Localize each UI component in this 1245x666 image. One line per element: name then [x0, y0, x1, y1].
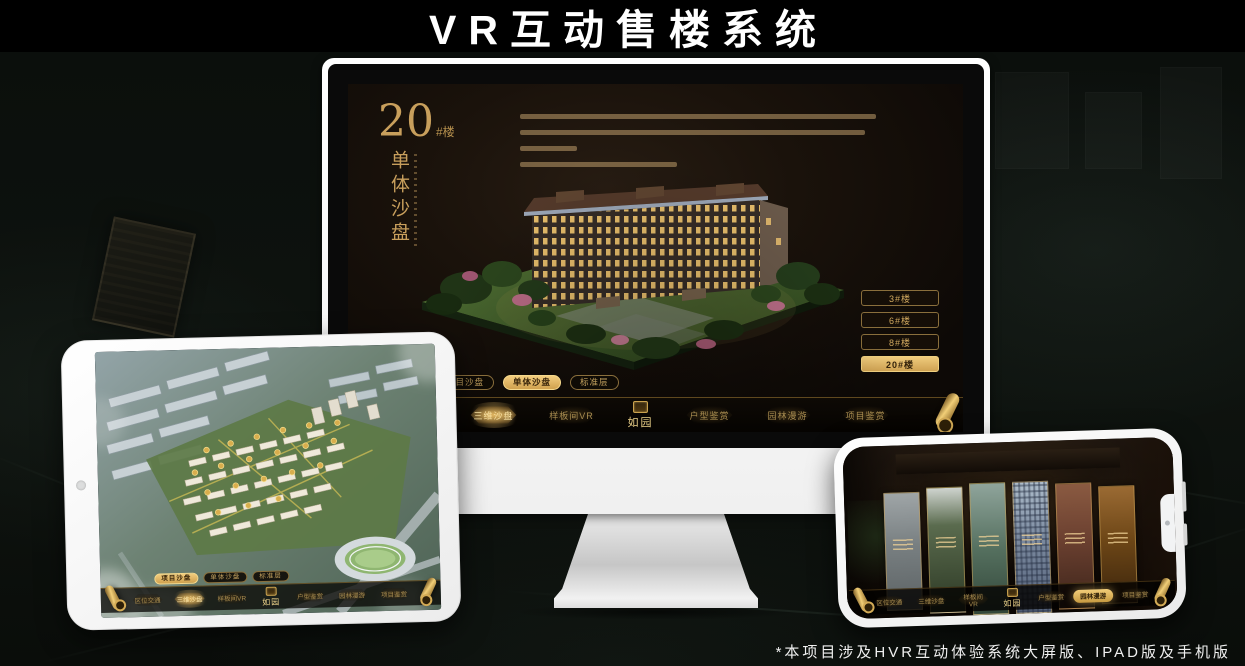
footnote: *本项目涉及HVR互动体验系统大屏版、IPAD版及手机版 — [776, 641, 1231, 662]
scroll-ornament-icon[interactable] — [934, 391, 962, 430]
background-building-block — [1085, 92, 1142, 169]
nav-item-garden-tour[interactable]: 园林漫游 — [1073, 588, 1113, 602]
phone-side-button — [1183, 523, 1188, 545]
nav-item-floorplan[interactable]: 户型鉴赏 — [674, 398, 746, 432]
tab-standard-floor[interactable]: 标准层 — [252, 570, 289, 582]
nav-item-floorplan[interactable]: 户型鉴赏 — [290, 583, 331, 608]
seal-icon — [265, 586, 276, 595]
background-building-block — [1160, 67, 1222, 179]
brand-logo-text: 如园 — [262, 596, 280, 607]
nav-item-project[interactable]: 项目鉴赏 — [374, 581, 415, 606]
floor-button-8[interactable]: 8#楼 — [861, 334, 939, 350]
nav-item-location[interactable]: 区位交通 — [127, 587, 168, 612]
nav-item-model-room-vr[interactable]: 样板间VR — [536, 398, 608, 432]
nav-item-project[interactable]: 项目鉴赏 — [830, 398, 902, 432]
phone-notch — [1160, 494, 1177, 552]
background-plaque — [92, 216, 196, 337]
scroll-ornament-icon[interactable] — [419, 576, 438, 603]
floor-button-6[interactable]: 6#楼 — [861, 312, 939, 328]
tablet-device: 项目沙盘 单体沙盘 标准层 区位交通 三维沙盘 样板间VR 如园 户型鉴赏 园林… — [61, 331, 462, 631]
floor-button-20[interactable]: 20#楼 — [861, 356, 939, 372]
nav-item-3d-sandbox[interactable]: 三维沙盘 — [911, 588, 952, 613]
brand-logo-text: 如园 — [1003, 597, 1021, 609]
nav-item-garden-tour[interactable]: 园林漫游 — [752, 398, 824, 432]
phone-screen: 区位交通 三维沙盘 样板间VR 如园 户型鉴赏 园林漫游 项目鉴赏 — [842, 437, 1177, 619]
title-bar: VR互动售楼系统 — [0, 0, 1245, 52]
nav-item-garden-tour[interactable]: 园林漫游 — [332, 582, 373, 607]
text-line — [520, 114, 876, 119]
tab-standard-floor[interactable]: 标准层 — [570, 375, 619, 390]
brand-logo-text: 如园 — [628, 414, 654, 430]
tab-single-sandbox[interactable]: 单体沙盘 — [203, 571, 247, 583]
background-building-block — [995, 72, 1069, 169]
sandbox-tabs: 项目沙盘 单体沙盘 标准层 — [436, 375, 619, 390]
building-number: 20 — [378, 96, 434, 147]
scroll-ornament-icon[interactable] — [1153, 577, 1172, 604]
tab-project-sandbox[interactable]: 项目沙盘 — [154, 573, 198, 585]
seal-icon — [633, 401, 648, 413]
nav-item-model-room-vr[interactable]: 样板间VR — [953, 587, 994, 612]
nav-item-3d-sandbox[interactable]: 三维沙盘 — [458, 398, 530, 432]
floor-button-3[interactable]: 3#楼 — [861, 290, 939, 306]
nav-item-project[interactable]: 项目鉴赏 — [1115, 581, 1156, 606]
tab-single-sandbox[interactable]: 单体沙盘 — [503, 375, 561, 390]
building-unit: #楼 — [436, 125, 455, 139]
text-line — [520, 130, 865, 135]
brand-logo: 如园 — [995, 587, 1030, 609]
floor-button-group: 3#楼 6#楼 8#楼 20#楼 — [861, 290, 939, 378]
brand-logo: 如园 — [254, 586, 289, 608]
nav-item-location[interactable]: 区位交通 — [869, 589, 910, 614]
nav-item-3d-sandbox[interactable]: 三维沙盘 — [169, 586, 210, 611]
tablet-screen: 项目沙盘 单体沙盘 标准层 区位交通 三维沙盘 样板间VR 如园 户型鉴赏 园林… — [95, 344, 441, 618]
building-render — [406, 148, 858, 392]
nav-item-floorplan[interactable]: 户型鉴赏 — [1031, 584, 1072, 609]
scroll-ornament-icon[interactable] — [103, 584, 123, 611]
brand-logo: 如园 — [614, 401, 668, 430]
seal-icon — [1006, 587, 1017, 596]
nav-item-model-room-vr[interactable]: 样板间VR — [211, 585, 252, 610]
monitor-stand — [554, 512, 758, 608]
page-title: VR互动售楼系统 — [417, 0, 828, 56]
tablet-camera-icon — [76, 480, 86, 490]
stage: VR互动售楼系统 20#楼 单体沙盘 — [0, 0, 1245, 666]
phone-device: 区位交通 三维沙盘 样板间VR 如园 户型鉴赏 园林漫游 项目鉴赏 — [833, 428, 1187, 629]
